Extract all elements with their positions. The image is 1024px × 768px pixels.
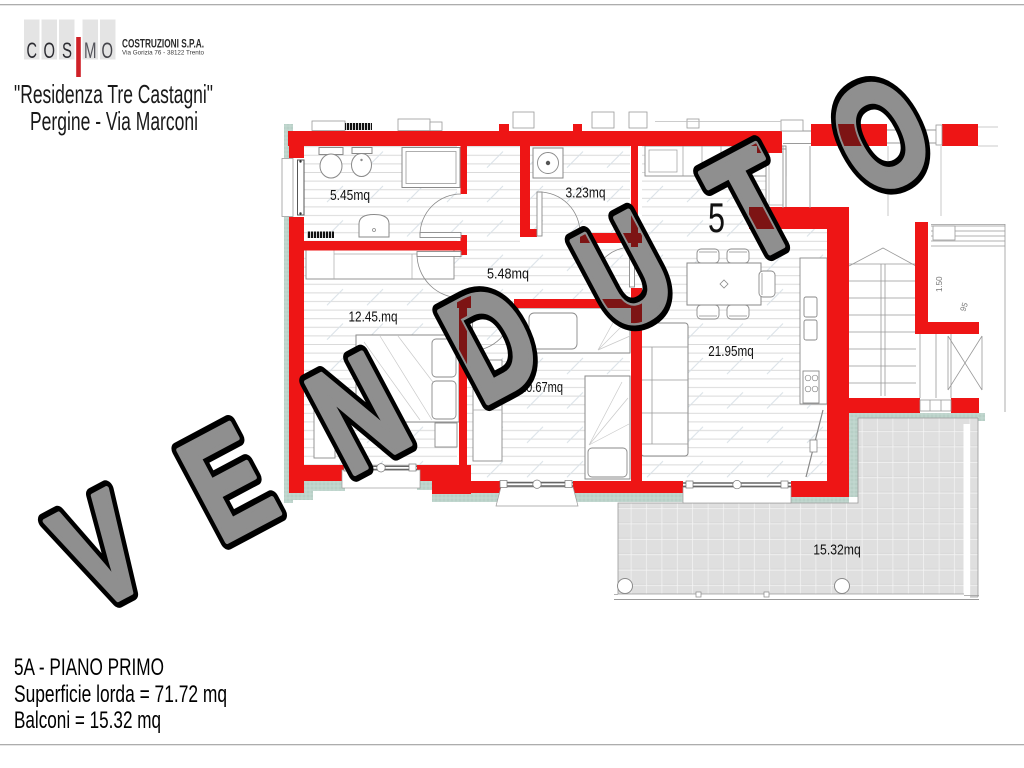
svg-text:1.50: 1.50 bbox=[935, 276, 944, 292]
svg-text:O: O bbox=[102, 38, 114, 63]
svg-text:21.95mq: 21.95mq bbox=[708, 344, 754, 360]
svg-text:M: M bbox=[84, 38, 97, 63]
svg-text:"Residenza Tre Castagni": "Residenza Tre Castagni" bbox=[14, 79, 213, 109]
svg-text:S: S bbox=[62, 38, 72, 63]
svg-text:Pergine - Via Marconi: Pergine - Via Marconi bbox=[30, 106, 198, 136]
svg-text:15.32mq: 15.32mq bbox=[813, 543, 861, 559]
svg-text:Via Gorizia 76 - 38122 Trento: Via Gorizia 76 - 38122 Trento bbox=[122, 50, 204, 57]
svg-text:O: O bbox=[44, 38, 56, 63]
svg-text:5A - PIANO PRIMO: 5A - PIANO PRIMO bbox=[14, 654, 164, 681]
svg-text:C: C bbox=[27, 38, 38, 63]
svg-text:Balconi = 15.32 mq: Balconi = 15.32 mq bbox=[14, 707, 161, 734]
svg-text:Superficie lorda = 71.72 mq: Superficie lorda = 71.72 mq bbox=[14, 681, 227, 708]
svg-text:5.45mq: 5.45mq bbox=[330, 188, 370, 204]
